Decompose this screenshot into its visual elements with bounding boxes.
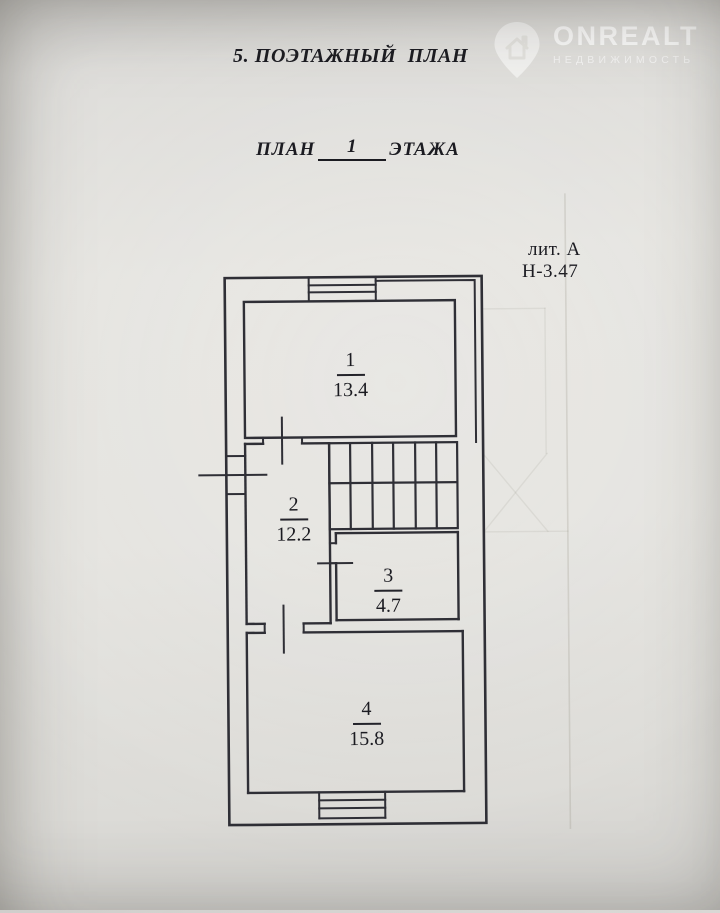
floor-plan-drawing: [0, 0, 720, 913]
room-3-label: 3 4.7: [374, 566, 402, 616]
room-2-area: 12.2: [276, 520, 311, 544]
scanned-floor-plan-page: { "document": { "section_title": "5. ПОЭ…: [0, 0, 720, 910]
room-2-number: 2: [280, 494, 308, 520]
room-3-area: 4.7: [374, 592, 402, 616]
door-entrance: [199, 456, 266, 495]
ghost-bleedthrough-lines: [481, 194, 571, 829]
room-1-number: 1: [336, 350, 364, 376]
window-bottom: [319, 792, 385, 819]
staircase: [329, 442, 458, 529]
window-top: [309, 277, 376, 302]
room-1-area: 13.4: [333, 376, 368, 400]
room-1-label: 1 13.4: [333, 350, 368, 400]
room-4-number: 4: [352, 699, 380, 725]
room-4-label: 4 15.8: [349, 699, 384, 749]
door-room2-room3: [318, 543, 352, 563]
door-room1-room2: [263, 417, 302, 463]
floor-plan: 1 13.4 2 12.2 3 4.7 4 15.8: [0, 0, 720, 913]
room-2-label: 2 12.2: [276, 494, 311, 544]
room-4-area: 15.8: [349, 725, 384, 749]
room-3-number: 3: [374, 566, 402, 592]
door-room2-room4: [264, 605, 303, 652]
